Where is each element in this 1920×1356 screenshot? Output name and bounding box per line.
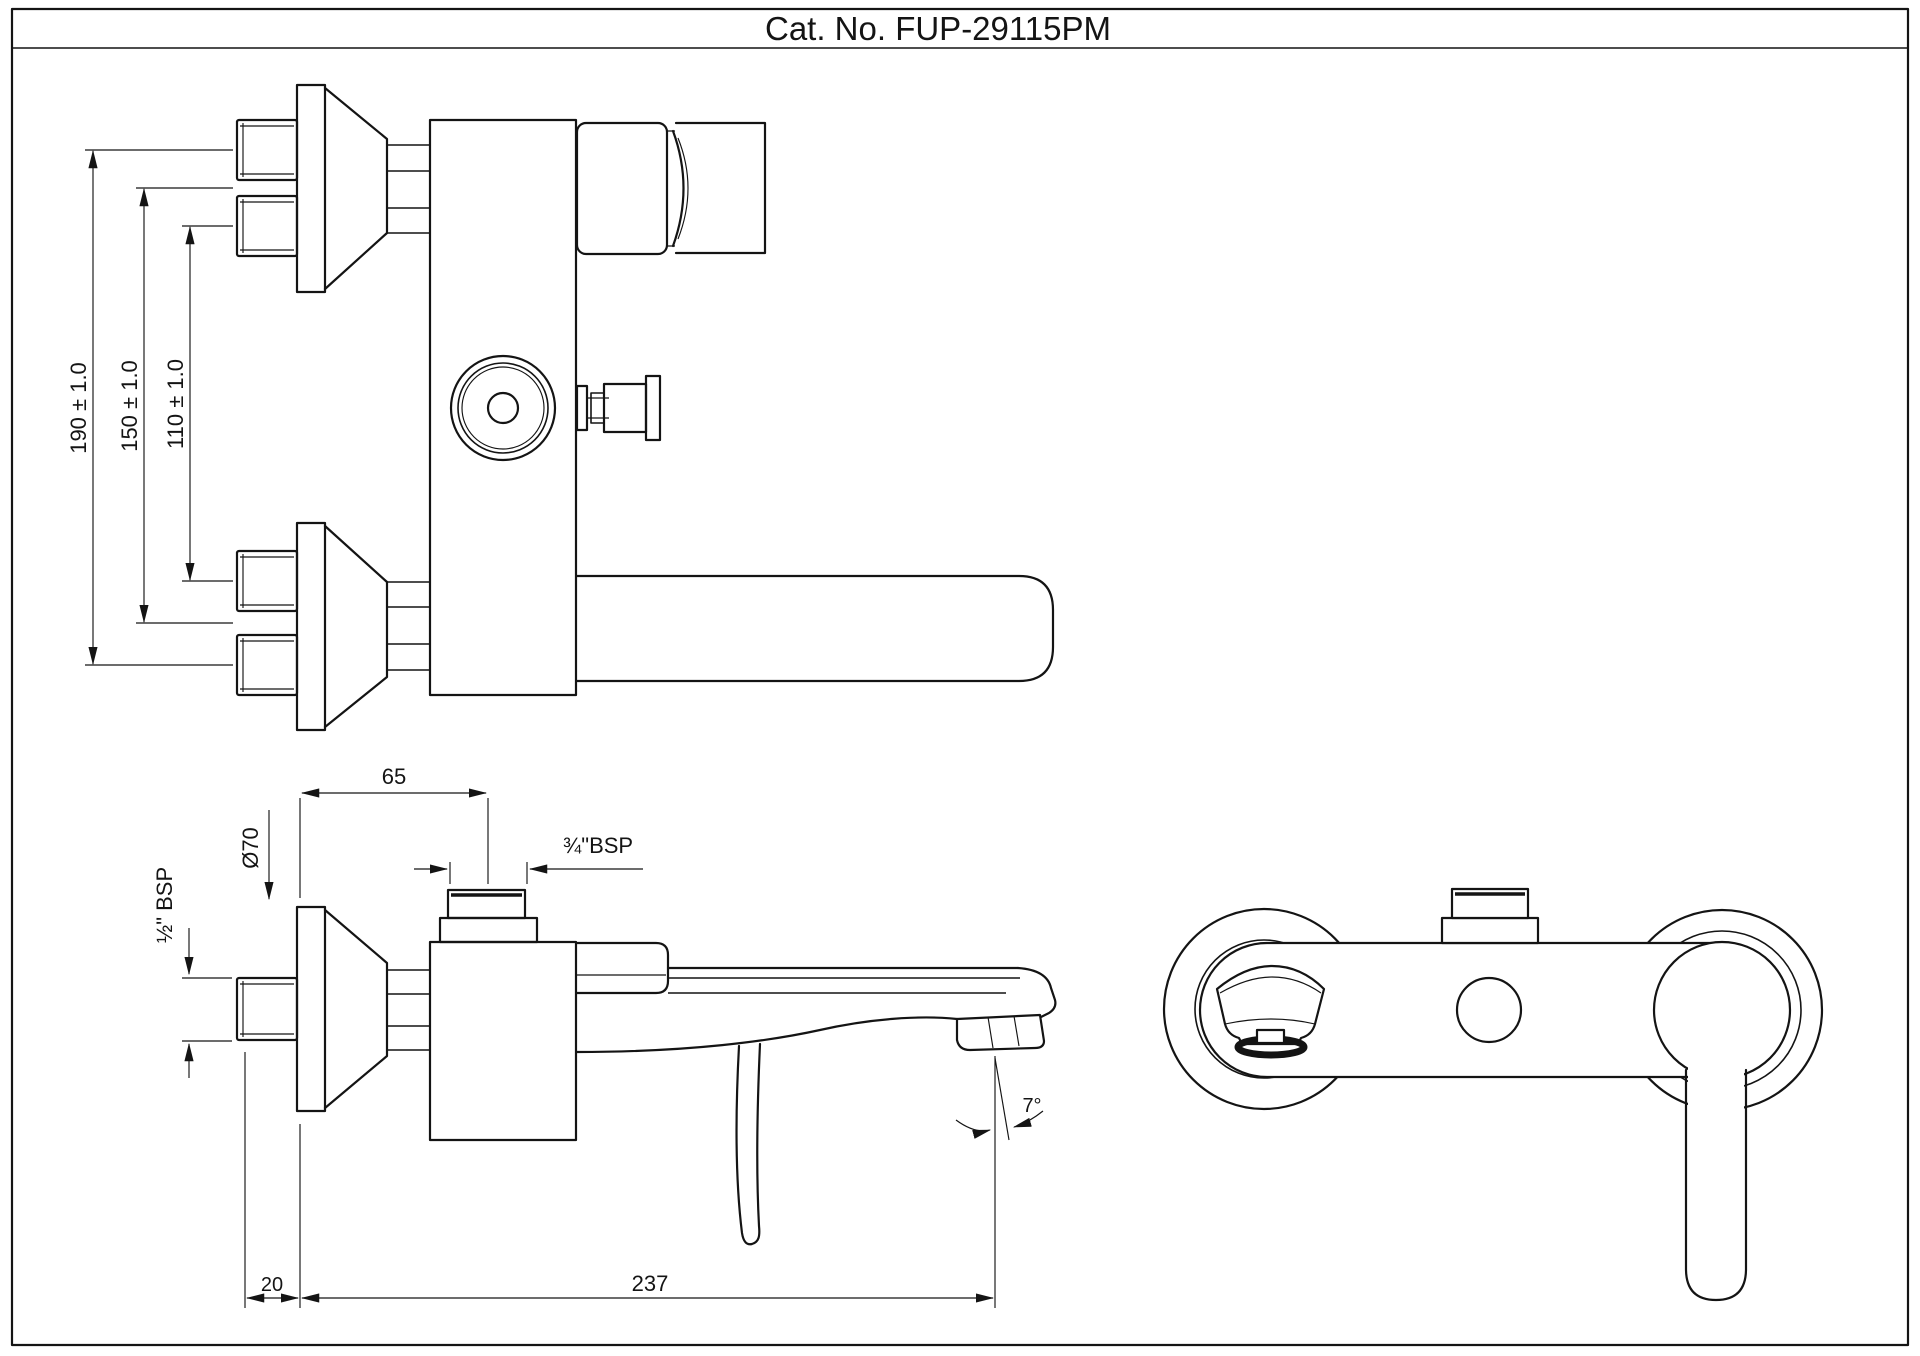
lever-handle-front	[577, 123, 765, 254]
handle-base-side	[577, 943, 668, 993]
valve-body-side	[430, 942, 576, 1140]
front-dimensions: 190 ± 1.0 150 ± 1.0 110 ± 1.0	[66, 150, 233, 665]
drawing-title: Cat. No. FUP-29115PM	[765, 10, 1111, 47]
dimension-label-110: 110 ± 1.0	[163, 359, 188, 449]
thread-label-half-bsp: ½" BSP	[152, 867, 177, 943]
spout-front	[577, 576, 1053, 681]
inlet-nut	[237, 120, 297, 180]
wall-flange-side	[297, 907, 430, 1111]
aerator-notch	[1257, 1030, 1284, 1043]
diverter-knob-front	[451, 356, 555, 460]
handle-lever-bottom	[1686, 1050, 1746, 1300]
wall-flange-upper	[297, 85, 430, 292]
dimension-label-190: 190 ± 1.0	[66, 362, 91, 454]
spout-side	[577, 968, 1055, 1052]
drawing-sheet: Cat. No. FUP-29115PM	[0, 0, 1920, 1356]
lever-blade-side	[737, 1044, 760, 1244]
side-dimensions: 65 Ø70 ½" BSP ¾"BSP 7° 20	[152, 764, 1043, 1308]
shower-outlet-front	[577, 376, 660, 440]
inlet-nut-side	[237, 978, 297, 1040]
inlet-nut	[237, 196, 297, 256]
dimension-label-20: 20	[261, 1274, 283, 1296]
diverter-port-side	[440, 890, 537, 942]
side-view: 65 Ø70 ½" BSP ¾"BSP 7° 20	[152, 764, 1055, 1308]
extension-lines-65	[300, 798, 488, 898]
front-view: 190 ± 1.0 150 ± 1.0 110 ± 1.0	[66, 85, 1053, 730]
diverter-port-bottom	[1442, 889, 1538, 943]
inlet-nut	[237, 551, 297, 611]
dimension-label-237: 237	[632, 1271, 669, 1296]
aerator-tip-side	[957, 1015, 1044, 1050]
inlet-nuts-front	[237, 120, 297, 695]
extension-lines-bottom	[245, 1052, 995, 1308]
thread-label-three-quarter-bsp: ¾"BSP	[563, 833, 633, 858]
diameter-label-70: Ø70	[238, 827, 263, 869]
dimension-label-65: 65	[382, 764, 406, 789]
bottom-view	[1164, 889, 1822, 1300]
dimension-label-150: 150 ± 1.0	[117, 360, 142, 452]
inlet-nut	[237, 635, 297, 695]
angle-label-7: 7°	[1022, 1095, 1041, 1117]
technical-drawing-canvas: Cat. No. FUP-29115PM	[0, 0, 1920, 1356]
angle-slant-line	[995, 1058, 1009, 1140]
extension-lines	[85, 150, 233, 665]
wall-flange-lower	[297, 523, 430, 730]
